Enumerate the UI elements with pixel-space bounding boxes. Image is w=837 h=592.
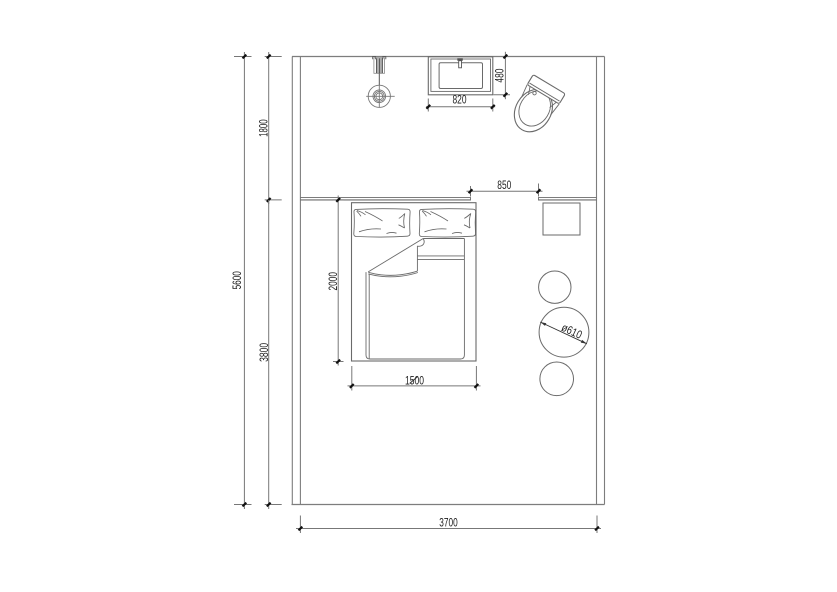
svg-text:3800: 3800 bbox=[259, 343, 271, 362]
svg-text:2000: 2000 bbox=[328, 272, 340, 291]
svg-text:1800: 1800 bbox=[258, 119, 270, 137]
svg-text:3700: 3700 bbox=[439, 518, 457, 530]
svg-text:850: 850 bbox=[497, 180, 511, 192]
svg-text:1500: 1500 bbox=[405, 375, 424, 387]
svg-text:820: 820 bbox=[453, 95, 467, 107]
svg-text:480: 480 bbox=[494, 69, 506, 83]
svg-text:5600: 5600 bbox=[232, 271, 244, 289]
